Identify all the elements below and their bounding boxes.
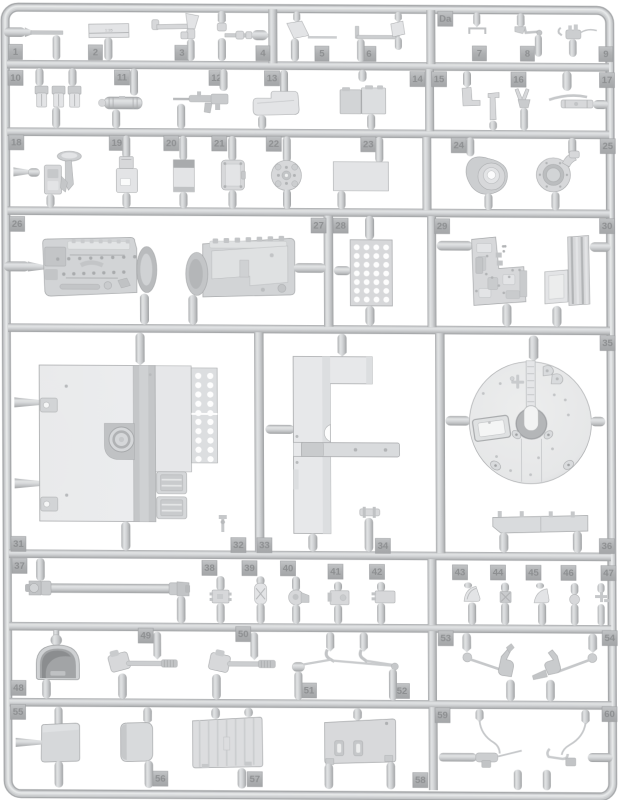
svg-text:43: 43 — [455, 567, 466, 578]
svg-text:3: 3 — [179, 48, 184, 59]
svg-text:40: 40 — [283, 564, 294, 575]
svg-text:55: 55 — [13, 707, 24, 718]
svg-text:56: 56 — [155, 774, 166, 785]
svg-text:36: 36 — [602, 541, 613, 552]
svg-text:33: 33 — [259, 540, 270, 551]
svg-text:54: 54 — [604, 633, 615, 644]
svg-text:17: 17 — [602, 75, 613, 86]
svg-text:39: 39 — [244, 563, 255, 574]
svg-text:53: 53 — [440, 633, 451, 644]
svg-text:19: 19 — [111, 138, 122, 149]
svg-text:29: 29 — [437, 221, 448, 232]
svg-text:49: 49 — [140, 631, 151, 642]
svg-text:46: 46 — [563, 568, 574, 579]
svg-text:4: 4 — [260, 48, 266, 59]
svg-text:38: 38 — [204, 563, 215, 574]
svg-text:30: 30 — [602, 221, 613, 232]
svg-text:34: 34 — [378, 541, 389, 552]
svg-text:24: 24 — [453, 140, 464, 151]
svg-text:52: 52 — [397, 686, 408, 697]
svg-text:10: 10 — [10, 73, 21, 84]
svg-text:1: 1 — [13, 47, 19, 58]
svg-text:58: 58 — [415, 775, 426, 786]
svg-text:1:35: 1:35 — [105, 27, 114, 32]
svg-text:16: 16 — [513, 75, 524, 86]
svg-text:28: 28 — [335, 221, 346, 232]
svg-text:48: 48 — [13, 683, 24, 694]
svg-text:44: 44 — [493, 568, 504, 579]
svg-text:5: 5 — [319, 49, 325, 60]
svg-text:32: 32 — [233, 540, 244, 551]
svg-text:42: 42 — [372, 567, 383, 578]
svg-text:51: 51 — [304, 686, 315, 697]
svg-text:41: 41 — [330, 567, 341, 578]
svg-text:18: 18 — [11, 138, 22, 149]
svg-text:8: 8 — [525, 49, 530, 60]
svg-text:26: 26 — [12, 219, 23, 230]
svg-text:59: 59 — [437, 710, 448, 721]
svg-text:9: 9 — [603, 49, 608, 60]
svg-text:60: 60 — [604, 709, 615, 720]
svg-text:14: 14 — [412, 74, 423, 85]
svg-text:20: 20 — [166, 138, 177, 149]
svg-text:25: 25 — [602, 141, 613, 152]
svg-text:35: 35 — [602, 338, 613, 349]
svg-text:22: 22 — [268, 139, 279, 150]
svg-text:7: 7 — [477, 49, 482, 60]
svg-text:45: 45 — [528, 568, 539, 579]
svg-text:47: 47 — [603, 568, 614, 579]
svg-text:57: 57 — [250, 774, 261, 785]
svg-text:11: 11 — [117, 73, 128, 84]
svg-text:13: 13 — [267, 73, 278, 84]
svg-text:50: 50 — [238, 629, 249, 640]
svg-text:21: 21 — [214, 139, 225, 150]
svg-text:27: 27 — [313, 221, 324, 232]
svg-text:6: 6 — [366, 49, 371, 60]
svg-text:15: 15 — [434, 74, 445, 85]
svg-text:2: 2 — [93, 48, 98, 59]
svg-text:Da: Da — [439, 14, 452, 25]
svg-text:37: 37 — [14, 561, 25, 572]
svg-text:31: 31 — [13, 539, 24, 550]
svg-text:23: 23 — [363, 140, 374, 151]
